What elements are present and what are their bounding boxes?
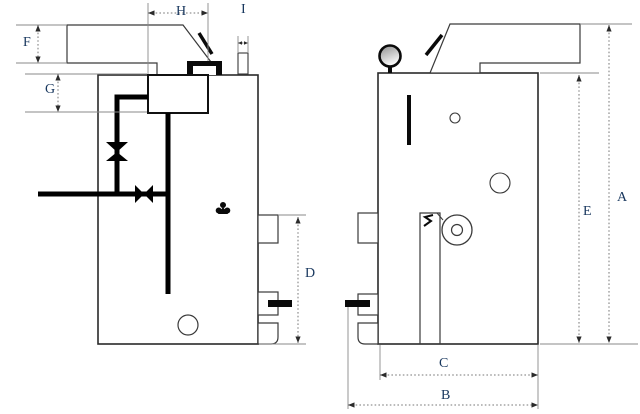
sight-glass-bar xyxy=(407,95,411,145)
side-drain-stub xyxy=(345,300,370,307)
dim-label-a: A xyxy=(617,191,627,205)
flue-collar xyxy=(187,61,222,75)
dim-label-h: H xyxy=(176,5,186,19)
side-port-upper xyxy=(358,213,378,243)
control-box xyxy=(148,75,208,113)
fan-hub-icon xyxy=(452,225,463,236)
front-foot xyxy=(258,323,278,344)
side-view xyxy=(345,24,580,344)
dim-label-i: I xyxy=(241,3,246,17)
dim-label-g: G xyxy=(45,83,55,97)
dim-label-e: E xyxy=(583,205,592,219)
dim-label-d: D xyxy=(305,267,315,281)
side-port-small xyxy=(450,113,460,123)
drawing-geometry xyxy=(0,0,640,414)
side-hood xyxy=(430,24,580,73)
side-port-large xyxy=(490,173,510,193)
side-foot xyxy=(358,323,378,344)
boiler-dimension-drawing: F G H I D E A C B xyxy=(0,0,640,414)
dim-label-f: F xyxy=(23,36,31,50)
front-cleanout-door xyxy=(178,315,198,335)
front-body xyxy=(98,75,258,344)
dim-label-b: B xyxy=(441,389,450,403)
pressure-gauge-icon xyxy=(380,46,401,74)
front-view xyxy=(38,25,292,344)
dim-label-c: C xyxy=(439,357,448,371)
front-drain-stub xyxy=(268,300,292,307)
front-port-upper xyxy=(258,215,278,243)
front-damper-lever-icon xyxy=(199,33,212,54)
chimney-stub xyxy=(238,53,248,74)
